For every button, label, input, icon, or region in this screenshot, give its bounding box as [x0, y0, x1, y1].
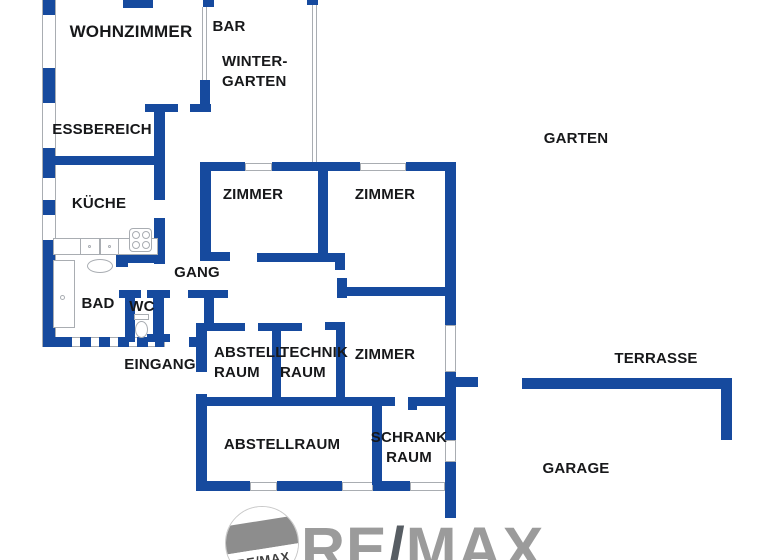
room-label-zimmer-rechts: ZIMMER	[355, 185, 415, 205]
room-label-wintergarten: WINTER-GARTEN	[222, 52, 288, 92]
remax-balloon-logo: RE/MAX	[225, 506, 299, 560]
brand-max: MAX	[406, 515, 545, 560]
room-label-schrankraum: SCHRANKRAUM	[371, 428, 447, 468]
room-label-garage: GARAGE	[542, 459, 609, 479]
balloon-stripes: RE/MAX	[225, 506, 299, 560]
remax-brand-text: RE/MAX	[301, 519, 544, 560]
room-label-essbereich: ESSBEREICH	[52, 120, 152, 140]
room-label-zimmer-links: ZIMMER	[223, 185, 283, 205]
floor-plan: WOHNZIMMERBARWINTER-GARTENESSBEREICHKÜCH…	[0, 0, 768, 560]
room-label-wohnzimmer: WOHNZIMMER	[70, 21, 193, 43]
room-label-bar: BAR	[212, 17, 245, 37]
room-label-eingang: EINGANG	[124, 355, 195, 375]
room-label-gang: GANG	[174, 263, 220, 283]
room-label-zimmer-unten: ZIMMER	[355, 345, 415, 365]
room-label-technikraum: TECHNIKRAUM	[280, 343, 348, 383]
room-labels-layer: WOHNZIMMERBARWINTER-GARTENESSBEREICHKÜCH…	[0, 0, 768, 560]
brand-re: RE	[301, 515, 388, 560]
room-label-bad: BAD	[81, 294, 114, 314]
room-label-terrasse: TERRASSE	[614, 349, 697, 369]
room-label-kueche: KÜCHE	[72, 194, 126, 214]
room-label-wc: WC	[129, 297, 154, 317]
room-label-abstellraum-klein: ABSTELLRAUM	[214, 343, 285, 383]
brand-slash: /	[388, 515, 406, 560]
room-label-abstellraum-gross: ABSTELLRAUM	[224, 435, 340, 455]
room-label-garten: GARTEN	[544, 129, 609, 149]
